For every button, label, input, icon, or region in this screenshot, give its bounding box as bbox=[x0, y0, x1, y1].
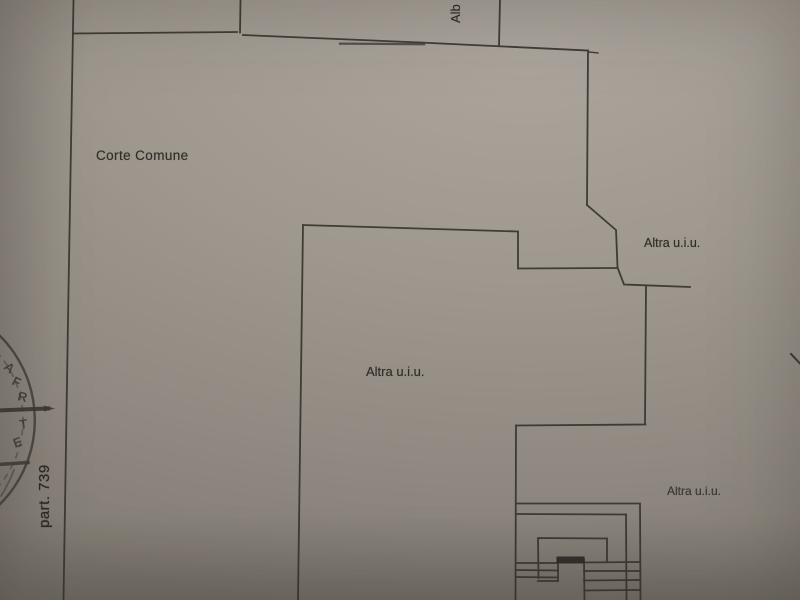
wall-diagonal-lower bbox=[618, 268, 691, 288]
wall-step-lower bbox=[516, 425, 646, 426]
stair-tread bbox=[584, 580, 640, 581]
label-altra-uiu-upper: Altra u.i.u. bbox=[644, 236, 700, 250]
label-altra-uiu-main: Altra u.i.u. bbox=[366, 364, 425, 379]
stair-tread bbox=[584, 562, 640, 563]
label-top-partial-rotated: Alb bbox=[448, 4, 463, 23]
stamp-letter: R bbox=[16, 388, 29, 405]
wall-main-room-top bbox=[303, 225, 518, 232]
wall-step-horizontal bbox=[518, 232, 618, 269]
stair-tread bbox=[585, 590, 641, 591]
stamp-letter: T bbox=[19, 416, 29, 432]
tick-top-right bbox=[589, 52, 598, 53]
wall-top-stub-right bbox=[499, 0, 500, 46]
wall-left-border bbox=[64, 0, 74, 600]
stamp-lower-flourish bbox=[1, 470, 14, 496]
wall-main-room-left bbox=[298, 225, 303, 600]
wall-top-right-retrace bbox=[340, 44, 424, 45]
wall-stair-left bbox=[516, 426, 517, 600]
stamp-bar-upper-tip bbox=[44, 406, 55, 412]
floor-plan-drawing: A F R T E bbox=[0, 0, 800, 600]
stamp-letter: E bbox=[11, 434, 25, 451]
stair-landing-bar bbox=[557, 557, 585, 564]
stair-tread bbox=[517, 577, 559, 578]
label-parcel-number: part. 739 bbox=[36, 464, 53, 528]
stamp-outer-arc bbox=[0, 333, 35, 507]
stamp-bar-upper bbox=[0, 409, 48, 411]
scanned-floor-plan: A F R T E Corte Comune Altra u.i.u. Altr… bbox=[0, 0, 800, 600]
wall-diagonal-upper bbox=[587, 205, 618, 267]
stamp-bar-lower bbox=[0, 463, 28, 465]
wall-top-stub-left bbox=[240, 0, 241, 33]
stair-second-line-top bbox=[517, 514, 626, 515]
wall-right-upper bbox=[587, 51, 588, 206]
stair-core-right bbox=[584, 559, 585, 600]
label-corte-comune: Corte Comune bbox=[96, 148, 189, 163]
wall-top-right bbox=[243, 35, 588, 51]
stair-second-line-right bbox=[626, 515, 627, 600]
wall-right-mid bbox=[645, 287, 646, 423]
label-altra-uiu-lower: Altra u.i.u. bbox=[667, 484, 721, 498]
stair-outer-box bbox=[517, 504, 641, 600]
wall-top-left bbox=[73, 32, 237, 34]
stair-tread bbox=[516, 570, 558, 571]
tick-right-edge bbox=[791, 354, 800, 364]
